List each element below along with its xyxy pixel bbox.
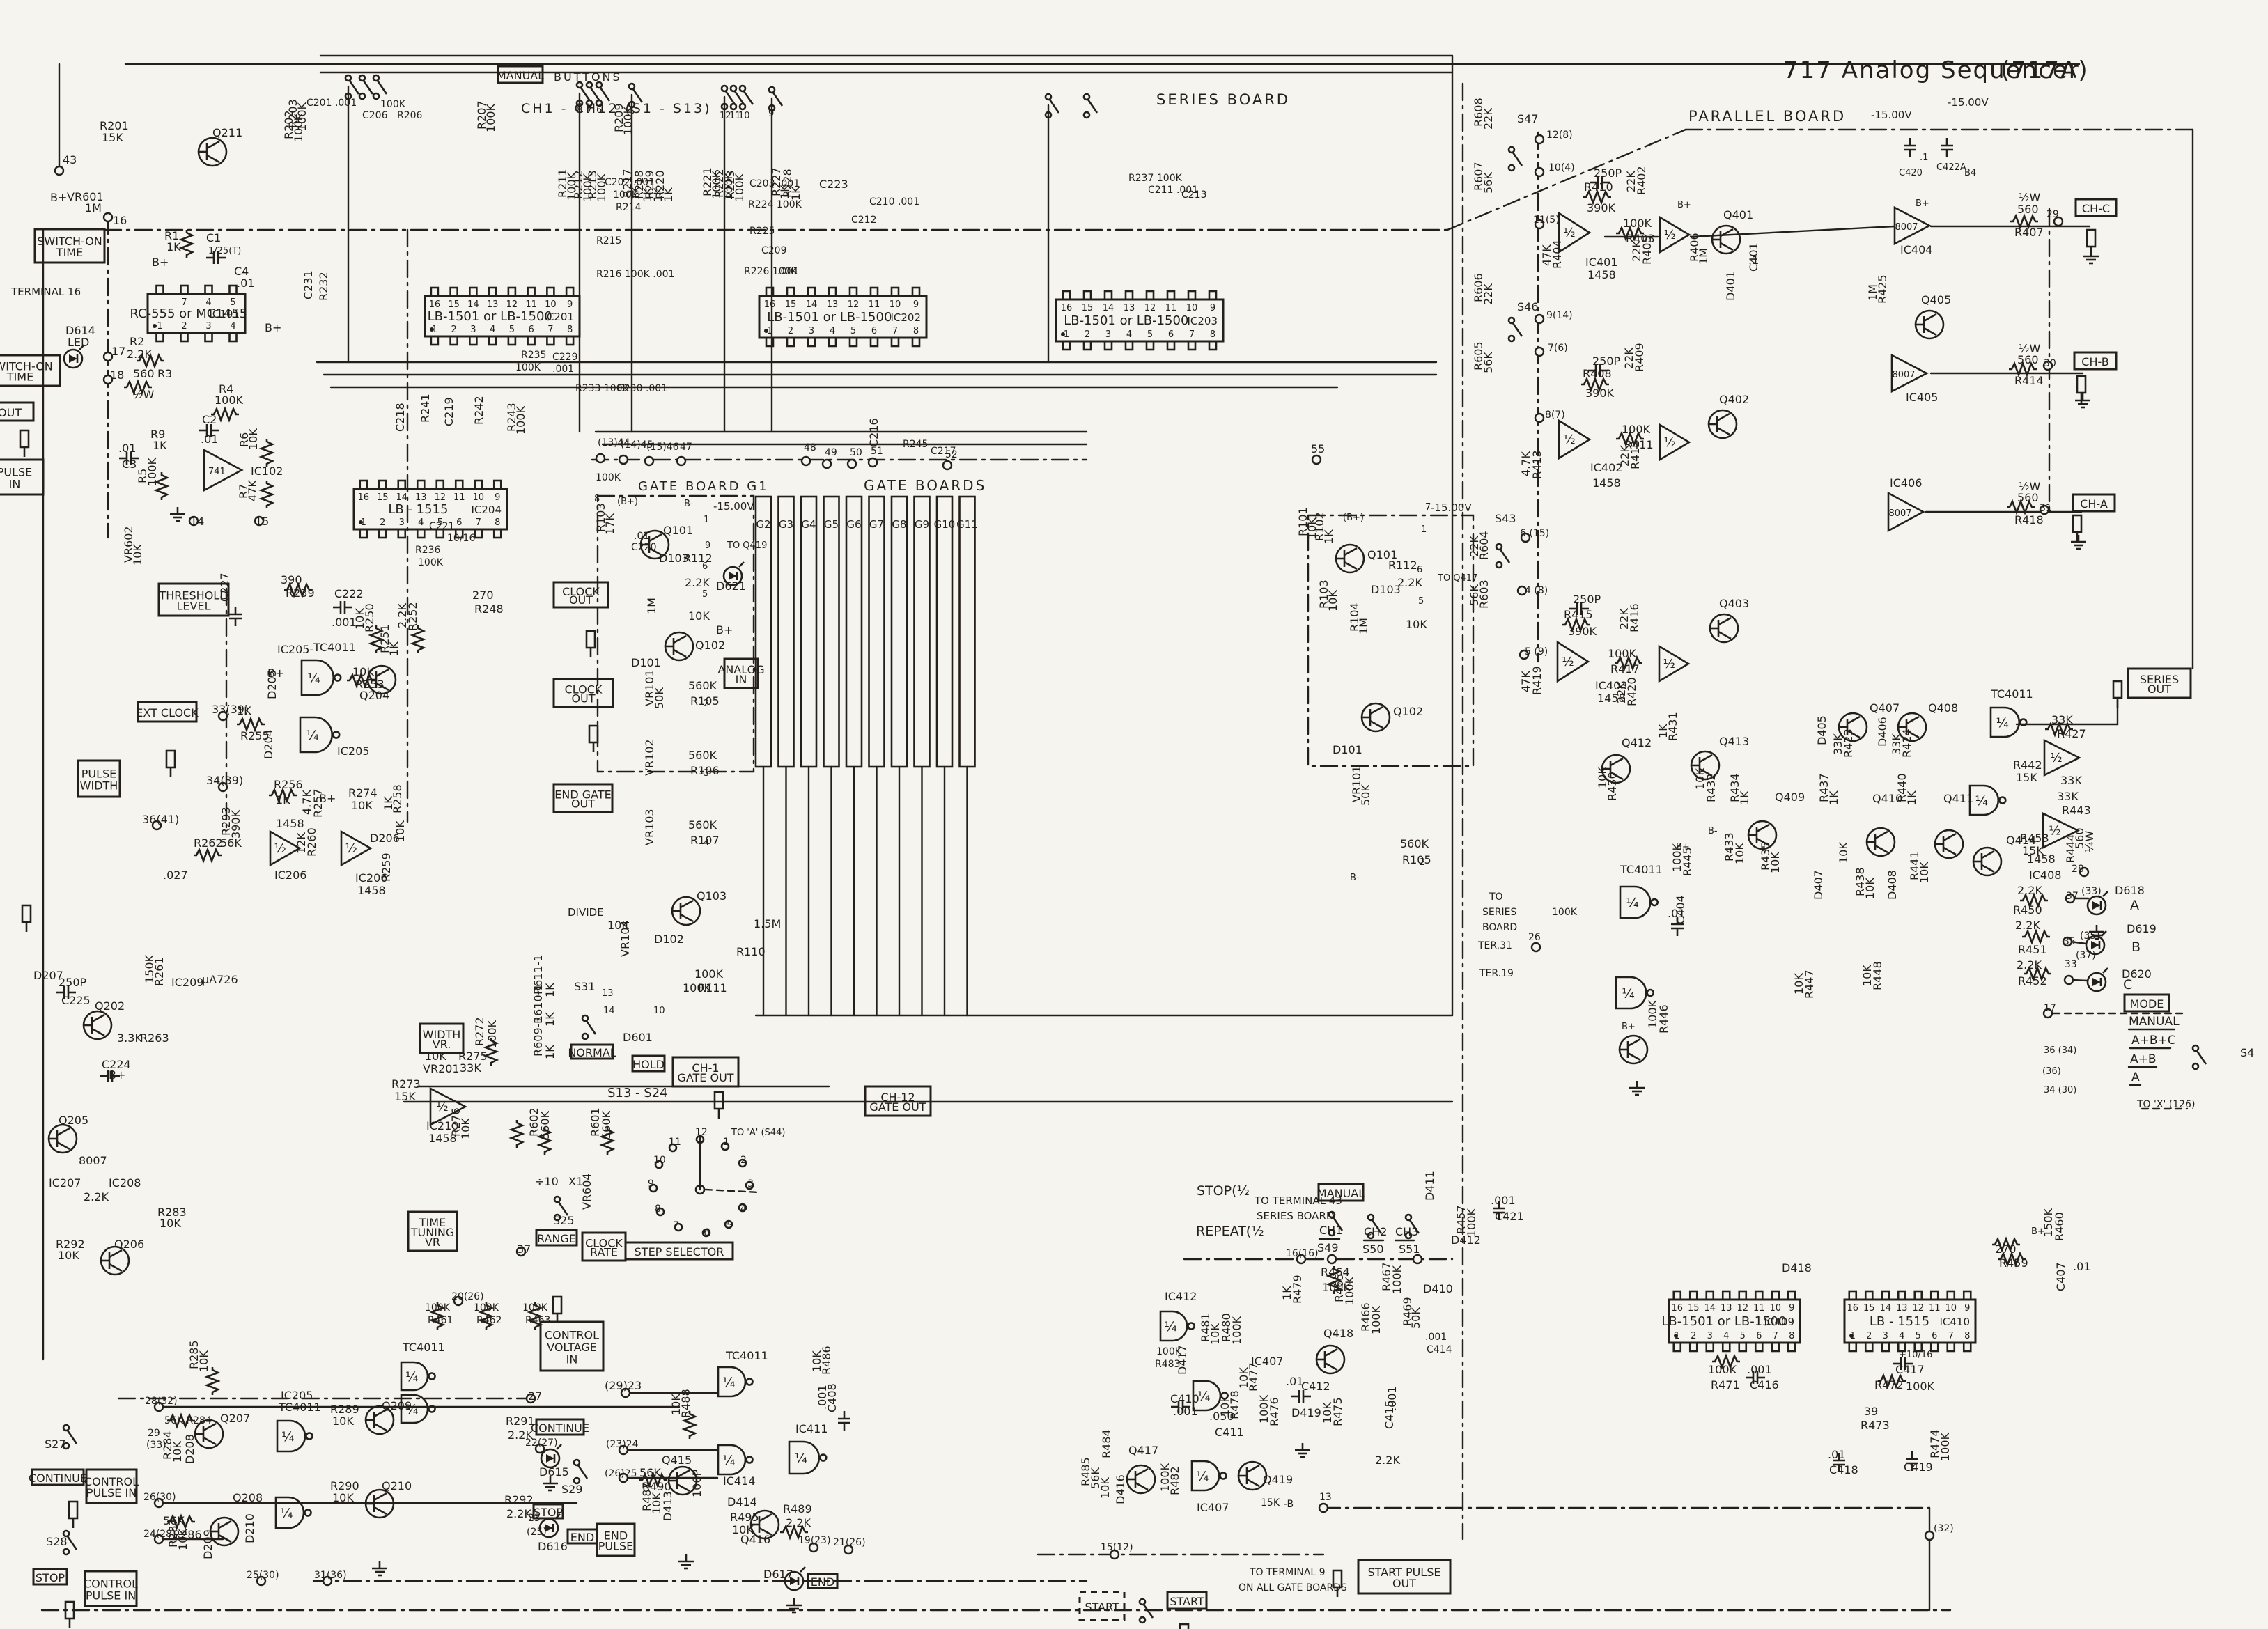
component-label: 18: [110, 368, 124, 382]
component-label: C2: [202, 413, 217, 426]
schematic-canvas: G2G3G4G5G6G7G8G9G10G11 1724354RC-555 or …: [0, 0, 2268, 1629]
nand-bubble: [334, 675, 341, 681]
jack[interactable]: [22, 905, 31, 922]
component-label: Q209: [382, 1399, 412, 1412]
component-label: A: [2130, 898, 2139, 913]
ic201-part-number: LB-1501 or LB-1500: [428, 309, 552, 324]
switch-contact[interactable]: [1509, 318, 1514, 323]
switch-blade[interactable]: [578, 1465, 587, 1479]
component-label: C1: [206, 231, 221, 244]
ic409-pin: [1772, 1291, 1779, 1300]
component-label: D617: [763, 1568, 793, 1581]
component-label: R460: [2053, 1212, 2066, 1241]
jack[interactable]: [2077, 376, 2086, 393]
gate-board-column: [869, 497, 885, 767]
jack[interactable]: [2073, 515, 2081, 532]
led-arrow: [739, 562, 744, 567]
component-label: ½W: [132, 388, 155, 401]
switch-contact[interactable]: [1084, 94, 1089, 100]
component-label: Q412: [1622, 736, 1652, 749]
end-1-label: END: [570, 1531, 594, 1544]
jack[interactable]: [20, 430, 29, 447]
switch-contact[interactable]: [373, 93, 379, 99]
ic203-pin: [1209, 341, 1216, 350]
nand-bubble: [1999, 797, 2005, 804]
component-label: R489: [783, 1502, 812, 1515]
component-label: CH2: [1364, 1225, 1387, 1238]
component-label: D410: [1423, 1282, 1453, 1295]
component-label: .001: [552, 364, 574, 375]
switch-contact[interactable]: [740, 104, 745, 109]
component-label: R263: [140, 1031, 169, 1045]
component-label: R413: [1530, 450, 1544, 479]
nand-label: ¼: [1996, 715, 2009, 731]
switch-blade[interactable]: [773, 93, 782, 106]
ic101-pin: [157, 333, 164, 341]
switch-blade[interactable]: [68, 1431, 77, 1444]
component-label: 30: [2044, 358, 2056, 369]
component-label: R418: [2014, 513, 2044, 527]
component-label: C412: [1301, 1380, 1330, 1393]
normal-label: NORMAL: [568, 1046, 616, 1059]
nand-label: ¼: [1197, 1389, 1210, 1404]
component-label: 8: [655, 1203, 661, 1215]
series-out-label: OUT: [2147, 683, 2171, 696]
ic202-pin-number: 9: [913, 299, 919, 310]
component-label: TC4011: [402, 1341, 445, 1354]
switch-contact[interactable]: [1406, 1215, 1411, 1220]
component-label: D414: [727, 1495, 757, 1509]
component-label: IC411: [795, 1422, 828, 1435]
ic201-pin: [508, 288, 515, 296]
component-label: Q401: [1723, 208, 1753, 221]
component-label: TER.19: [1479, 968, 1514, 979]
component-label: 100K: [515, 362, 541, 373]
switch-contact[interactable]: [1046, 94, 1051, 100]
ic203-pin: [1105, 291, 1112, 299]
component-label: D405: [1815, 715, 1828, 745]
transistor-lead: [1247, 1479, 1259, 1486]
transistor-lead: [92, 1015, 104, 1022]
component-label: 1M: [85, 201, 102, 215]
component-label: Q416: [740, 1533, 770, 1546]
component-label: 1: [1421, 524, 1427, 535]
ic204-pin: [379, 481, 386, 489]
component-label: R260: [305, 827, 318, 857]
switch-contact[interactable]: [2193, 1063, 2198, 1069]
component-label: D419: [1291, 1406, 1321, 1419]
switch-contact[interactable]: [574, 1460, 580, 1465]
transistor-lead: [374, 1424, 387, 1431]
component-label: IC412: [1165, 1290, 1197, 1303]
jack[interactable]: [587, 631, 595, 648]
component-label: C401: [1747, 242, 1760, 272]
component-label: STOP(½: [1197, 1183, 1250, 1199]
ic410-part-number: LB - 1515: [1870, 1314, 1929, 1329]
switch-contact[interactable]: [2193, 1045, 2198, 1051]
ic409-pin-number: 12: [1737, 1303, 1748, 1314]
ic204-pin-number: 13: [415, 492, 427, 503]
switch-contact[interactable]: [1509, 147, 1514, 153]
switch-blade[interactable]: [1144, 1605, 1153, 1618]
component-label: 10K: [1837, 842, 1850, 864]
transistor-lead: [681, 901, 693, 907]
component-label: 28: [2072, 864, 2084, 875]
component-label: R239: [286, 586, 315, 600]
component-label: 560: [2017, 491, 2039, 504]
component-label: R603: [1477, 579, 1491, 609]
component-label: 1K: [789, 186, 802, 201]
component-label: R215: [596, 235, 621, 247]
component-label: R459: [1999, 1256, 2028, 1270]
component-label: 4: [704, 838, 709, 848]
ic410-pin1-dot: [1849, 1334, 1854, 1338]
switch-contact[interactable]: [731, 104, 736, 109]
component-label: ÷10: [535, 1175, 559, 1188]
switch-blade[interactable]: [1513, 323, 1522, 336]
switch-blade[interactable]: [1500, 550, 1509, 563]
component-label: 1K: [276, 793, 290, 806]
component-label: R225: [749, 226, 775, 237]
component-label: R471: [1711, 1378, 1740, 1392]
component-label: LED: [68, 336, 89, 349]
component-label: R472: [1874, 1378, 1904, 1392]
switch-contact[interactable]: [1509, 336, 1514, 341]
switch-contact[interactable]: [1509, 165, 1514, 171]
component-label: CH3: [1395, 1225, 1418, 1238]
component-label: B-: [1708, 826, 1718, 836]
jack[interactable]: [2087, 230, 2095, 247]
switch-blade[interactable]: [744, 91, 753, 104]
jack[interactable]: [166, 751, 175, 767]
switch-blade[interactable]: [2197, 1051, 2206, 1064]
component-label: R432: [1704, 773, 1718, 802]
terminal-node: [848, 460, 856, 468]
ic201-pin: [469, 288, 476, 296]
switch-contact[interactable]: [1084, 112, 1089, 118]
led-triangle: [2092, 978, 2101, 986]
ic201-pin: [508, 336, 515, 345]
switch-blade[interactable]: [581, 88, 590, 101]
component-label: 17: [2044, 1003, 2056, 1014]
ic203-pin: [1105, 341, 1112, 350]
ic203-pin-number: 12: [1144, 303, 1156, 313]
component-label: Q102: [695, 639, 725, 652]
ic201-pin-number: 14: [467, 299, 479, 310]
component-label: 560K: [1400, 837, 1429, 850]
ic203-pin-number: 3: [1105, 329, 1111, 340]
start-1-label: START: [1085, 1600, 1119, 1614]
transistor-lead: [1757, 825, 1769, 832]
switch-contact[interactable]: [1140, 1617, 1145, 1623]
switch-blade[interactable]: [735, 91, 744, 104]
terminal-node: [1413, 1255, 1422, 1263]
ic409-pin: [1739, 1291, 1746, 1300]
switch-contact[interactable]: [359, 75, 365, 81]
component-label: 2.2K: [127, 348, 152, 361]
component-label: 1/25(T): [208, 246, 241, 256]
component-label: D101: [631, 656, 661, 669]
ic201-pin: [489, 288, 496, 296]
ic204-pin-number: 10: [472, 492, 484, 503]
component-label: 1K: [387, 641, 401, 656]
ic204-designator: IC204: [471, 504, 502, 516]
transistor-lead: [1628, 1053, 1640, 1060]
switch-blade[interactable]: [350, 81, 359, 94]
jack[interactable]: [715, 1092, 723, 1109]
transistor-lead: [1135, 1483, 1148, 1490]
component-label: IC407: [1197, 1501, 1229, 1514]
ic204-pin: [360, 481, 367, 489]
component-label: B+: [152, 256, 169, 269]
component-label: S51: [1399, 1242, 1420, 1256]
component-label: D408: [1886, 870, 1899, 900]
component-label: R452: [2018, 974, 2047, 988]
component-label: D416: [1114, 1474, 1127, 1504]
component-label: R453: [2020, 832, 2049, 845]
component-label: C212: [851, 215, 877, 226]
opamp-label: 8007: [1888, 508, 1911, 519]
component-label: 17: [111, 345, 125, 358]
ic101-pin: [181, 333, 188, 341]
opamp-label: ½: [345, 841, 357, 856]
switch-contact[interactable]: [373, 75, 379, 81]
ic203-pin-number: 6: [1168, 329, 1174, 340]
switch-blade[interactable]: [600, 88, 609, 101]
component-label: 50K: [1409, 1307, 1422, 1329]
component-label: -15.00V: [1948, 96, 1989, 109]
component-label: R461: [428, 1315, 453, 1326]
component-label: D103: [1371, 583, 1401, 596]
component-label: C419: [1904, 1460, 1933, 1474]
component-label: D417: [1176, 1345, 1189, 1375]
switch-contact[interactable]: [1496, 544, 1502, 550]
ic201-pin: [547, 336, 554, 345]
component-label: 100K: [1369, 1305, 1383, 1334]
ic201-pin-number: 2: [451, 325, 456, 335]
component-label: R261: [153, 957, 166, 986]
component-label: IC208: [109, 1176, 141, 1190]
component-label: .001: [1747, 1363, 1772, 1376]
nand-bubble: [1647, 990, 1654, 996]
component-label: D406: [1876, 717, 1889, 747]
component-label: R410: [1584, 180, 1613, 194]
component-label: C404: [1674, 895, 1687, 924]
control-voltage-in-label: IN: [566, 1353, 578, 1366]
component-label: R427: [2057, 727, 2086, 740]
component-label: 56K R284: [164, 1415, 212, 1426]
nand-bubble: [333, 732, 339, 738]
component-label: .01: [1828, 1448, 1845, 1461]
component-label: Q403: [1719, 597, 1749, 610]
ic201-pin-number: 16: [429, 299, 441, 310]
ic203-pin: [1167, 291, 1174, 299]
component-label: A+B: [2130, 1052, 2157, 1066]
switch-blade[interactable]: [1513, 153, 1522, 166]
ic101-pin: [181, 286, 188, 294]
component-label: 1K: [1738, 790, 1751, 805]
component-label: CH1: [1319, 1224, 1342, 1237]
component-label: 10/16: [447, 533, 475, 544]
component-label: R476: [1268, 1397, 1281, 1426]
ic410-pin-number: 9: [1964, 1303, 1970, 1314]
switch-contact[interactable]: [740, 86, 745, 91]
component-label: 10: [738, 111, 750, 121]
switch-blade[interactable]: [1088, 100, 1097, 113]
transistor-lead: [57, 1128, 70, 1135]
component-label: 100K: [474, 1302, 499, 1314]
switch-contact[interactable]: [1496, 562, 1502, 568]
component-label: 2: [1420, 857, 1425, 868]
component-label: R274: [348, 786, 378, 800]
switch-contact[interactable]: [359, 93, 365, 99]
component-label: BOARD: [1482, 922, 1517, 933]
ic201-pin: [431, 336, 438, 345]
component-label: 1458: [1592, 476, 1621, 490]
component-label: 1K: [543, 1045, 557, 1059]
switch-blade[interactable]: [378, 81, 387, 94]
nand-bubble: [820, 1455, 826, 1461]
component-label: 25(30): [247, 1570, 279, 1581]
component-label: B4: [1964, 168, 1976, 178]
switch-contact[interactable]: [769, 87, 775, 93]
switch-contact[interactable]: [731, 86, 736, 91]
switch-contact[interactable]: [554, 1197, 560, 1202]
switch-contact[interactable]: [629, 84, 635, 89]
ic203-pin: [1084, 291, 1091, 299]
component-label: R451: [2018, 943, 2047, 956]
ic202-pin: [808, 288, 815, 296]
ic204-pin-number: 4: [418, 517, 424, 528]
jack[interactable]: [553, 1297, 561, 1314]
component-label: 9(14): [1546, 310, 1573, 321]
switch-blade[interactable]: [68, 1536, 77, 1550]
component-label: IC404: [1900, 243, 1932, 256]
component-label: REPEAT(½: [1196, 1224, 1264, 1239]
switch-blade[interactable]: [1050, 100, 1059, 113]
component-label: 5: [702, 589, 708, 600]
led-triangle: [69, 354, 77, 363]
component-label: 33K: [2051, 713, 2073, 726]
ic409-pin-number: 8: [1789, 1331, 1794, 1341]
component-label: TO Q417: [1437, 573, 1477, 584]
component-label: 1M: [1357, 618, 1370, 634]
led-arrow: [2103, 891, 2108, 896]
switch-blade[interactable]: [726, 91, 735, 104]
switch-contact[interactable]: [1140, 1599, 1145, 1605]
led-triangle: [546, 1454, 554, 1463]
component-label: C231: [302, 270, 315, 299]
component-label: IC405: [1906, 391, 1938, 404]
component-label: 2.2K: [786, 1516, 811, 1529]
jack[interactable]: [2113, 681, 2122, 698]
component-label: Q411: [1943, 792, 1973, 805]
transistor-lead: [674, 636, 686, 643]
ic101-designator: IC101: [209, 308, 240, 320]
gate-board-label: G2: [756, 518, 770, 531]
switch-blade[interactable]: [364, 81, 373, 94]
switch-contact[interactable]: [63, 1549, 69, 1554]
ic202-pin: [892, 338, 899, 346]
jack[interactable]: [1180, 1624, 1188, 1629]
ic410-pin: [1882, 1291, 1889, 1300]
switch-contact[interactable]: [63, 1425, 69, 1431]
resistor: [511, 1120, 522, 1148]
gate-board-column: [892, 497, 907, 767]
component-label: 10K: [352, 665, 374, 678]
opamp-label: ½: [1562, 655, 1574, 669]
ic409-pin: [1723, 1291, 1730, 1300]
opamp-label: ½: [1663, 657, 1675, 671]
capacitor: [1941, 138, 1953, 157]
component-label: B+: [50, 191, 67, 204]
terminal-node: [645, 457, 653, 465]
jack[interactable]: [589, 726, 598, 742]
gate-board-column: [779, 497, 794, 767]
transistor-lead: [1943, 848, 1956, 855]
component-label: 26: [1528, 932, 1541, 943]
component-label: 560K: [600, 1110, 613, 1139]
opamp-label: ½: [1664, 228, 1676, 242]
switch-blade[interactable]: [591, 88, 600, 101]
component-label: 50K: [653, 687, 666, 709]
component-label: R484: [1100, 1429, 1113, 1458]
component-label: D618: [2115, 884, 2145, 897]
resistor: [237, 719, 265, 730]
component-label: D407: [1812, 870, 1825, 900]
component-label: 10K: [176, 1529, 189, 1550]
nand-bubble: [429, 1373, 435, 1380]
ic409-pin: [1788, 1291, 1795, 1300]
component-label: C220: [631, 542, 657, 553]
component-label: 1K: [166, 240, 181, 254]
switch-contact[interactable]: [582, 1015, 588, 1021]
component-label: 15(12): [1101, 1542, 1133, 1553]
switch-contact[interactable]: [1368, 1215, 1374, 1220]
ic201-pin: [566, 288, 573, 296]
ic410-pin-number: 6: [1932, 1331, 1937, 1341]
component-label: IC408: [2029, 868, 2061, 882]
nand-label: ¼: [1626, 896, 1638, 911]
component-label: 36 (34): [2044, 1045, 2076, 1056]
component-label: 100K: [1939, 1432, 1952, 1461]
transistor-lead: [1700, 755, 1712, 762]
component-label: R262: [194, 836, 223, 850]
switch-contact[interactable]: [722, 86, 727, 91]
transistor-lead: [374, 1493, 387, 1500]
component-label: 16(16): [1286, 1248, 1319, 1259]
switch-contact[interactable]: [582, 1034, 588, 1039]
component-label: (35): [2080, 930, 2100, 942]
component-label: 10K: [131, 544, 144, 566]
component-label: 14: [603, 1006, 615, 1016]
component-label: R414: [2014, 374, 2044, 387]
switch-contact[interactable]: [345, 75, 351, 81]
ic203-pin: [1126, 341, 1133, 350]
component-label: Q415: [662, 1453, 692, 1467]
component-label: R462: [476, 1315, 502, 1326]
component-label: 13: [1319, 1492, 1332, 1503]
component-label: C225: [61, 994, 91, 1007]
jack[interactable]: [69, 1502, 77, 1518]
component-label: 250P: [1594, 166, 1622, 180]
component-label: 34(39): [206, 774, 243, 787]
component-label: MANUAL: [2129, 1015, 2180, 1029]
component-label: 250P: [1592, 354, 1621, 368]
gate-board-label: G10: [934, 518, 956, 531]
switch-blade[interactable]: [587, 1021, 596, 1034]
component-label: 36(41): [142, 813, 179, 826]
